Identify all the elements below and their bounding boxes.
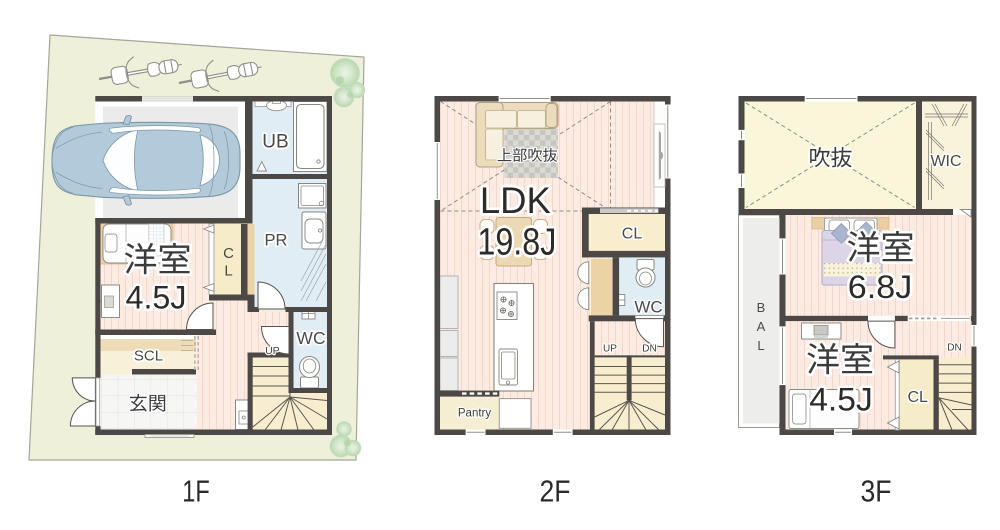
svg-text:Pantry: Pantry	[458, 408, 491, 420]
svg-text:UP: UP	[603, 344, 617, 355]
svg-text:PR: PR	[265, 231, 288, 249]
svg-text:CL: CL	[622, 225, 643, 242]
svg-text:UB: UB	[262, 131, 288, 152]
svg-text:B: B	[757, 300, 766, 315]
svg-text:LDK: LDK	[480, 180, 551, 221]
svg-text:DN: DN	[642, 344, 656, 355]
svg-text:WIC: WIC	[930, 153, 961, 170]
svg-text:L: L	[757, 338, 764, 353]
svg-text:2F: 2F	[540, 473, 571, 508]
svg-text:WC: WC	[634, 297, 662, 316]
svg-text:L: L	[224, 262, 232, 279]
svg-text:WC: WC	[296, 328, 325, 348]
svg-text:DN: DN	[947, 343, 961, 354]
svg-text:A: A	[757, 319, 766, 334]
svg-text:SCL: SCL	[134, 347, 163, 364]
svg-text:6.8J: 6.8J	[848, 269, 913, 305]
svg-text:UP: UP	[265, 345, 280, 357]
svg-text:C: C	[223, 245, 234, 262]
svg-text:4.5J: 4.5J	[126, 280, 187, 316]
svg-text:19.8J: 19.8J	[477, 222, 556, 264]
svg-text:1F: 1F	[182, 473, 210, 508]
svg-text:CL: CL	[907, 389, 928, 406]
svg-text:4.5J: 4.5J	[809, 382, 873, 418]
svg-text:3F: 3F	[861, 473, 892, 508]
